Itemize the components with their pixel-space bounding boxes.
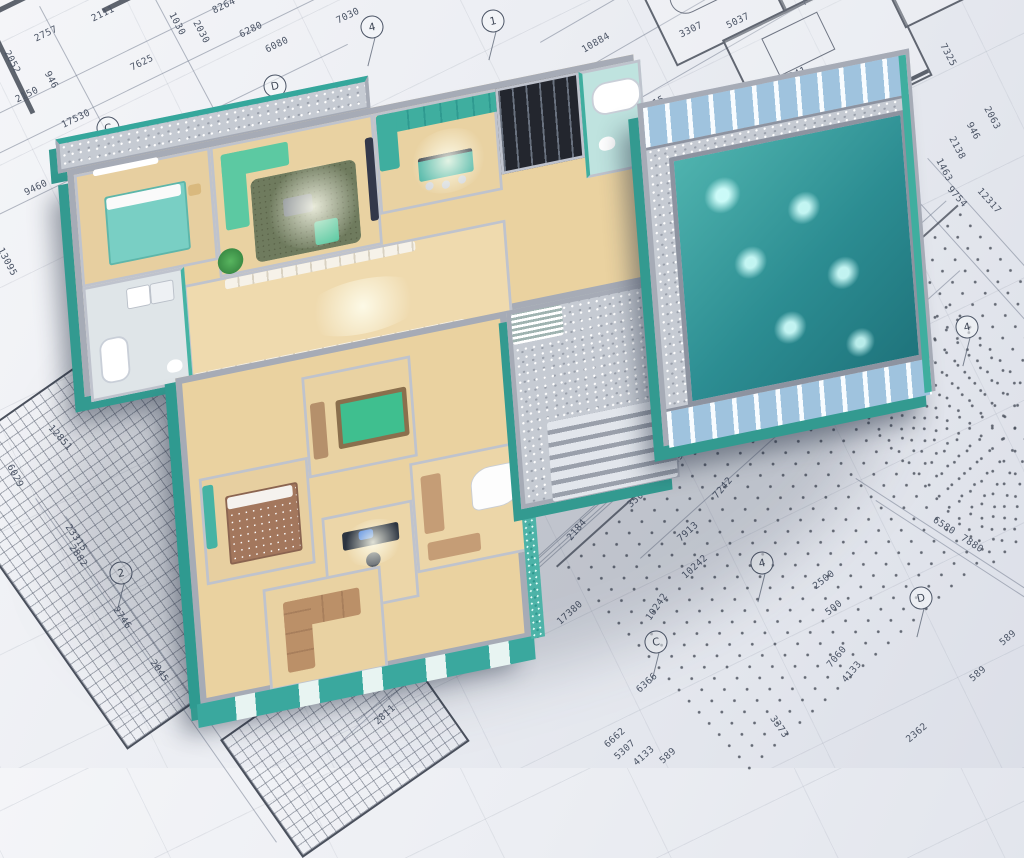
bedroom-2 — [199, 457, 316, 586]
washer — [126, 284, 151, 310]
bathtub-2 — [99, 334, 131, 385]
dimension-label: 589 — [997, 628, 1018, 648]
dryer — [149, 279, 174, 305]
toilet-2 — [167, 358, 183, 374]
dimension-label: 589 — [967, 664, 988, 684]
bar-stool — [425, 181, 434, 191]
sofa-brown-2 — [427, 532, 481, 561]
armchair-green — [314, 217, 339, 245]
nightstand — [188, 183, 202, 196]
dimension-label: 6080 — [264, 35, 291, 56]
pool-wing — [637, 48, 935, 446]
bathtub — [591, 75, 642, 117]
grid-marker: 4 — [358, 13, 385, 40]
billiard-room — [301, 355, 418, 478]
sofa-brown — [420, 473, 444, 535]
bench — [310, 401, 329, 460]
kitchen-tall-cabinet — [376, 112, 400, 172]
dimension-label: 2362 — [904, 721, 930, 745]
sectional-sofa-leg — [283, 597, 316, 673]
dimension-label: 13095 — [0, 246, 19, 278]
terrace-vent-wall — [511, 304, 564, 345]
dimension-label: 6366 — [634, 671, 660, 696]
master-bedroom — [74, 147, 219, 287]
kitchen — [373, 89, 503, 215]
bar-stool — [458, 175, 467, 185]
potted-plant — [217, 246, 244, 276]
teal-wardrobe — [202, 484, 218, 549]
grid-marker: 1 — [479, 7, 506, 34]
piano-room — [409, 440, 531, 573]
toilet — [598, 135, 615, 152]
blueprint-photo-scene: { "palette":{ "paper":"#eceef3","line":"… — [0, 0, 1024, 768]
dimension-label: 589 — [657, 746, 678, 766]
dimension-label: 7030 — [335, 6, 362, 27]
stairwell — [495, 72, 585, 175]
pool-table — [335, 386, 409, 449]
bar-stool — [442, 180, 451, 190]
dimension-label: 9754 — [945, 184, 970, 210]
pool-water — [669, 110, 924, 407]
dimension-label: 12317 — [975, 186, 1004, 216]
dimension-label: 10884 — [580, 31, 612, 56]
grand-piano — [470, 460, 522, 511]
